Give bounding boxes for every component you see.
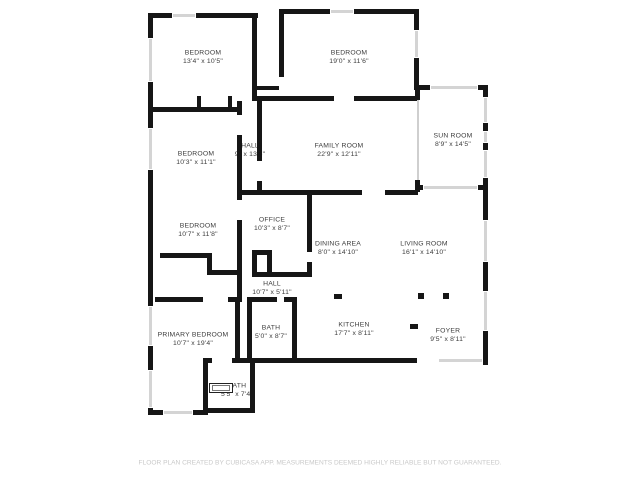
wall xyxy=(385,190,418,195)
window xyxy=(430,85,478,90)
window xyxy=(438,358,483,363)
window xyxy=(172,13,196,18)
room-dimensions: 17'7" x 8'11" xyxy=(334,329,373,336)
wall xyxy=(418,293,424,299)
room-label-living-room: LIVING ROOM16'1" x 14'10" xyxy=(400,240,448,256)
room-label-bedroom-top-left: BEDROOM13'4" x 10'5" xyxy=(183,49,223,65)
room-label-office: OFFICE10'3" x 8'7" xyxy=(254,216,290,232)
window xyxy=(148,306,153,346)
room-dimensions: 10'7" x 5'11" xyxy=(252,288,291,295)
wall xyxy=(235,297,240,363)
room-label-bedroom-middle-left: BEDROOM10'3" x 11'1" xyxy=(176,150,215,166)
room-dimensions: 22'9" x 12'11" xyxy=(315,150,364,157)
room-name: FOYER xyxy=(430,327,465,334)
wall xyxy=(415,90,420,100)
window xyxy=(330,9,354,14)
wall xyxy=(203,358,208,413)
wall xyxy=(334,294,342,299)
window xyxy=(483,220,488,262)
wall xyxy=(279,9,284,77)
window xyxy=(414,30,419,58)
room-name: BATH xyxy=(255,324,287,331)
window xyxy=(423,185,478,190)
floor-plan-canvas: BEDROOM13'4" x 10'5" BEDROOM19'0" x 11'6… xyxy=(0,0,640,480)
room-label-bedroom-top-right: BEDROOM19'0" x 11'6" xyxy=(329,49,368,65)
room-name: DINING AREA xyxy=(315,240,361,247)
wall xyxy=(155,297,203,302)
room-dimensions: 16'1" x 14'10" xyxy=(400,248,448,255)
window xyxy=(483,291,488,331)
wall xyxy=(237,101,242,115)
room-label-primary-bedroom: PRIMARY BEDROOM10'7" x 19'4" xyxy=(158,331,229,347)
room-dimensions: 10'7" x 11'8" xyxy=(178,230,217,237)
wall xyxy=(207,270,237,275)
room-name: PRIMARY BEDROOM xyxy=(158,331,229,338)
wall xyxy=(257,86,279,90)
room-label-bedroom-lower-left: BEDROOM10'7" x 11'8" xyxy=(178,222,217,238)
window xyxy=(148,38,153,82)
sink-basin xyxy=(212,385,230,391)
room-name: BEDROOM xyxy=(176,150,215,157)
room-label-kitchen: KITCHEN17'7" x 8'11" xyxy=(334,321,373,337)
room-label-hall: HALL10'7" x 5'11" xyxy=(252,280,291,296)
room-dimensions: 5'0" x 8'7" xyxy=(255,332,287,339)
room-dimensions: 8'9" x 14'5" xyxy=(433,140,472,147)
wall xyxy=(148,13,258,18)
bathroom-sink-icon xyxy=(209,383,233,393)
room-name: BEDROOM xyxy=(329,49,368,56)
wall xyxy=(415,185,423,190)
window xyxy=(483,131,488,143)
wall xyxy=(203,408,255,413)
room-label-sun-room: SUN ROOM8'9" x 14'5" xyxy=(433,132,472,148)
window xyxy=(483,97,488,123)
wall xyxy=(478,185,488,190)
window xyxy=(148,128,153,170)
room-dimensions: 10'3" x 11'1" xyxy=(176,158,215,165)
wall xyxy=(257,101,262,161)
room-name: HALL xyxy=(252,280,291,287)
window xyxy=(483,150,488,178)
room-name: BEDROOM xyxy=(178,222,217,229)
wall xyxy=(257,181,262,190)
room-name: BEDROOM xyxy=(183,49,223,56)
room-name: LIVING ROOM xyxy=(400,240,448,247)
wall xyxy=(250,358,255,413)
window xyxy=(163,410,193,415)
wall xyxy=(160,253,207,258)
floor-plan-disclaimer: FLOOR PLAN CREATED BY CUBICASA APP. MEAS… xyxy=(139,459,502,466)
wall xyxy=(237,220,242,302)
room-label-foyer: FOYER9'5" x 8'11" xyxy=(430,327,465,343)
wall xyxy=(247,297,252,360)
glass-partition xyxy=(417,100,419,180)
room-name: SUN ROOM xyxy=(433,132,472,139)
room-dimensions: 19'0" x 11'6" xyxy=(329,57,368,64)
room-label-family-room: FAMILY ROOM22'9" x 12'11" xyxy=(315,142,364,158)
room-dimensions: 13'4" x 10'5" xyxy=(183,57,223,64)
room-dimensions: 9'5" x 8'11" xyxy=(430,335,465,342)
wall xyxy=(292,297,297,360)
wall xyxy=(410,324,418,329)
room-name: OFFICE xyxy=(254,216,290,223)
wall xyxy=(232,358,417,363)
room-label-bath: BATH5'0" x 8'7" xyxy=(255,324,287,340)
wall xyxy=(252,272,312,277)
room-name: KITCHEN xyxy=(334,321,373,328)
room-dimensions: 8'0" x 14'10" xyxy=(315,248,361,255)
window xyxy=(148,370,153,408)
wall xyxy=(252,96,334,101)
room-name: FAMILY ROOM xyxy=(315,142,364,149)
wall xyxy=(354,96,418,101)
wall xyxy=(237,190,362,195)
wall xyxy=(307,190,312,252)
room-label-dining-area: DINING AREA8'0" x 14'10" xyxy=(315,240,361,256)
room-dimensions: 10'3" x 8'7" xyxy=(254,224,290,231)
wall xyxy=(443,293,449,299)
room-dimensions: 10'7" x 19'4" xyxy=(158,339,229,346)
wall xyxy=(148,107,237,112)
